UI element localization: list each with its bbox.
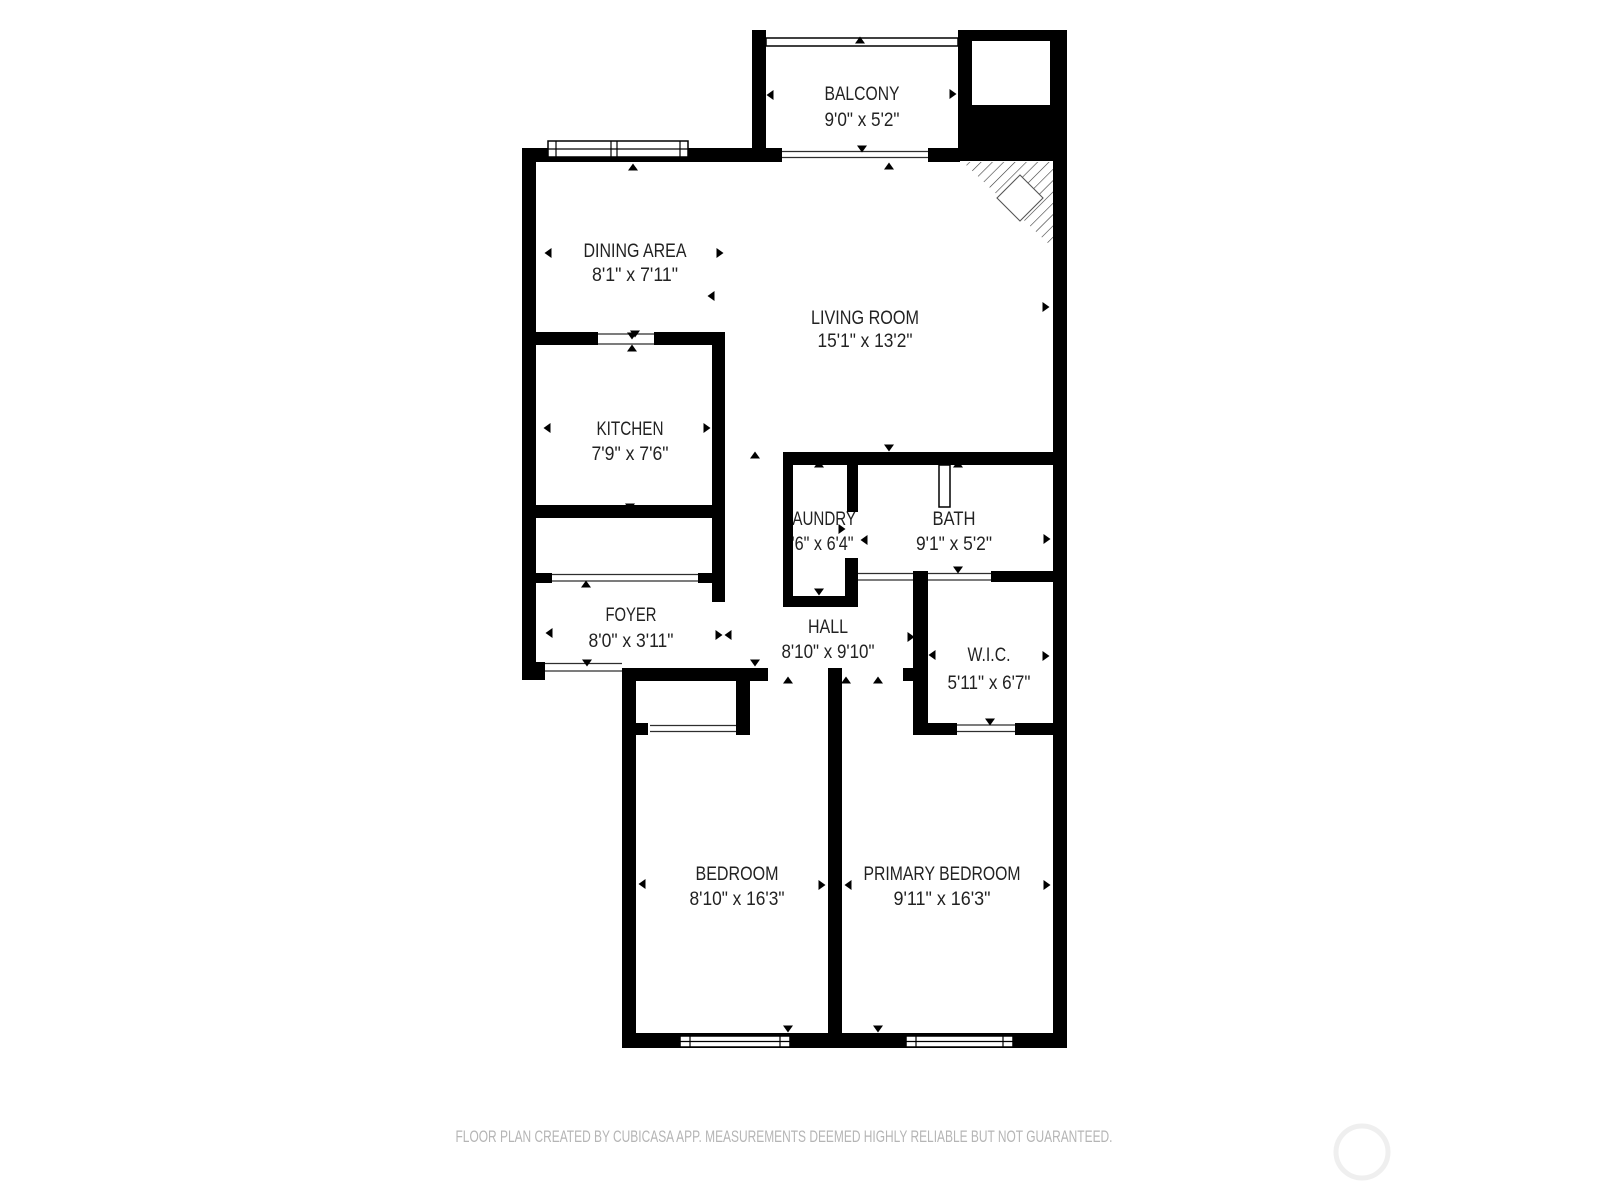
- wall-segment: [1053, 161, 1067, 1048]
- wall-segment: [522, 148, 536, 662]
- room-label-dining-area: DINING AREA: [584, 241, 687, 262]
- corner-fireplace: [963, 162, 1053, 248]
- dim-arrow-icon: [704, 423, 711, 433]
- wall-segment: [913, 723, 957, 735]
- dim-arrow-icon: [845, 880, 852, 890]
- room-label-laundry: LAUNDRY: [784, 509, 856, 530]
- dim-arrow-icon: [950, 89, 957, 99]
- balcony-storage: [972, 41, 1050, 105]
- wall-segment: [736, 681, 750, 735]
- room-label-hall: HALL: [808, 617, 848, 638]
- wall-segment: [622, 668, 768, 681]
- wall-segment: [766, 148, 782, 162]
- wall-segment: [1015, 723, 1053, 735]
- dim-arrow-icon: [717, 248, 724, 258]
- dim-arrow-icon: [861, 535, 868, 545]
- wall-segment: [712, 332, 725, 602]
- dim-arrow-icon: [627, 345, 637, 352]
- wall-segment: [536, 573, 552, 583]
- room-labels: BALCONY 9'0" x 5'2" DINING AREA 8'1" x 7…: [584, 84, 1031, 910]
- wall-segment: [536, 332, 598, 345]
- dim-arrow-icon: [546, 628, 553, 638]
- dim-arrow-icon: [953, 567, 963, 574]
- room-label-balcony: BALCONY: [825, 84, 900, 105]
- floor-plan-page: BALCONY 9'0" x 5'2" DINING AREA 8'1" x 7…: [0, 0, 1600, 1200]
- floor-plan: BALCONY 9'0" x 5'2" DINING AREA 8'1" x 7…: [0, 0, 1600, 1200]
- room-dims-wic: 5'11" x 6'7": [948, 673, 1031, 694]
- bath-door-leaf: [939, 465, 950, 507]
- dim-arrow-icon: [750, 660, 760, 667]
- dim-arrow-icon: [545, 248, 552, 258]
- room-dims-bedroom: 8'10" x 16'3": [690, 889, 785, 910]
- dim-arrow-icon: [767, 90, 774, 100]
- dim-arrow-icon: [716, 630, 723, 640]
- dim-arrow-icon: [783, 677, 793, 684]
- room-dims-dining-area: 8'1" x 7'11": [592, 265, 678, 286]
- dim-arrow-icon: [639, 879, 646, 889]
- room-label-foyer: FOYER: [606, 605, 657, 626]
- room-label-primary-bedroom: PRIMARY BEDROOM: [864, 864, 1021, 885]
- dim-arrow-icon: [1044, 880, 1051, 890]
- dim-arrow-icon: [884, 445, 894, 452]
- room-label-kitchen: KITCHEN: [597, 419, 664, 440]
- dim-arrow-icon: [628, 164, 638, 171]
- wall-segment: [752, 30, 766, 162]
- dim-arrow-icon: [814, 589, 824, 596]
- dim-arrow-icon: [708, 291, 715, 301]
- footer-disclaimer: FLOOR PLAN CREATED BY CUBICASA APP. MEAS…: [456, 1127, 1113, 1146]
- cubicasa-watermark-logo: [1336, 1126, 1388, 1178]
- room-dims-bath: 9'1" x 5'2": [916, 534, 992, 555]
- wall-segment: [828, 668, 842, 1048]
- room-label-living-room: LIVING ROOM: [811, 308, 919, 329]
- wall-segment: [636, 723, 648, 735]
- dim-arrow-icon: [750, 452, 760, 459]
- wall-segment: [991, 571, 1053, 582]
- room-dims-hall: 8'10" x 9'10": [782, 642, 875, 663]
- wall-segment: [783, 452, 793, 598]
- wall-segment: [622, 668, 636, 1048]
- wall-segment: [783, 452, 1053, 465]
- dim-arrow-icon: [1043, 651, 1050, 661]
- dim-arrow-icon: [819, 880, 826, 890]
- room-dims-primary-bedroom: 9'11" x 16'3": [894, 889, 991, 910]
- dim-arrow-icon: [1043, 302, 1050, 312]
- room-dims-living-room: 15'1" x 13'2": [818, 331, 913, 352]
- room-dims-kitchen: 7'9" x 7'6": [592, 444, 669, 465]
- dim-arrow-icon: [929, 650, 936, 660]
- dim-arrow-icon: [873, 677, 883, 684]
- dim-arrow-icon: [725, 630, 732, 640]
- room-label-bedroom: BEDROOM: [696, 864, 779, 885]
- dim-arrow-icon: [544, 423, 551, 433]
- room-dims-balcony: 9'0" x 5'2": [825, 110, 900, 131]
- wall-segment: [522, 662, 545, 680]
- wall-segment: [928, 148, 960, 162]
- room-dims-foyer: 8'0" x 3'11": [589, 631, 674, 652]
- dim-arrow-icon: [873, 1026, 883, 1033]
- dim-arrow-icon: [783, 1026, 793, 1033]
- room-label-wic: W.I.C.: [968, 645, 1011, 666]
- wall-segment: [698, 573, 725, 583]
- wall-segment: [783, 596, 857, 607]
- dim-arrow-icon: [841, 677, 851, 684]
- dim-arrow-icon: [884, 163, 894, 170]
- wall-segment: [913, 571, 928, 735]
- room-dims-laundry: 2'6" x 6'4": [783, 534, 854, 555]
- room-label-bath: BATH: [933, 509, 976, 530]
- wall-segment: [847, 452, 858, 512]
- dim-arrow-icon: [1044, 534, 1051, 544]
